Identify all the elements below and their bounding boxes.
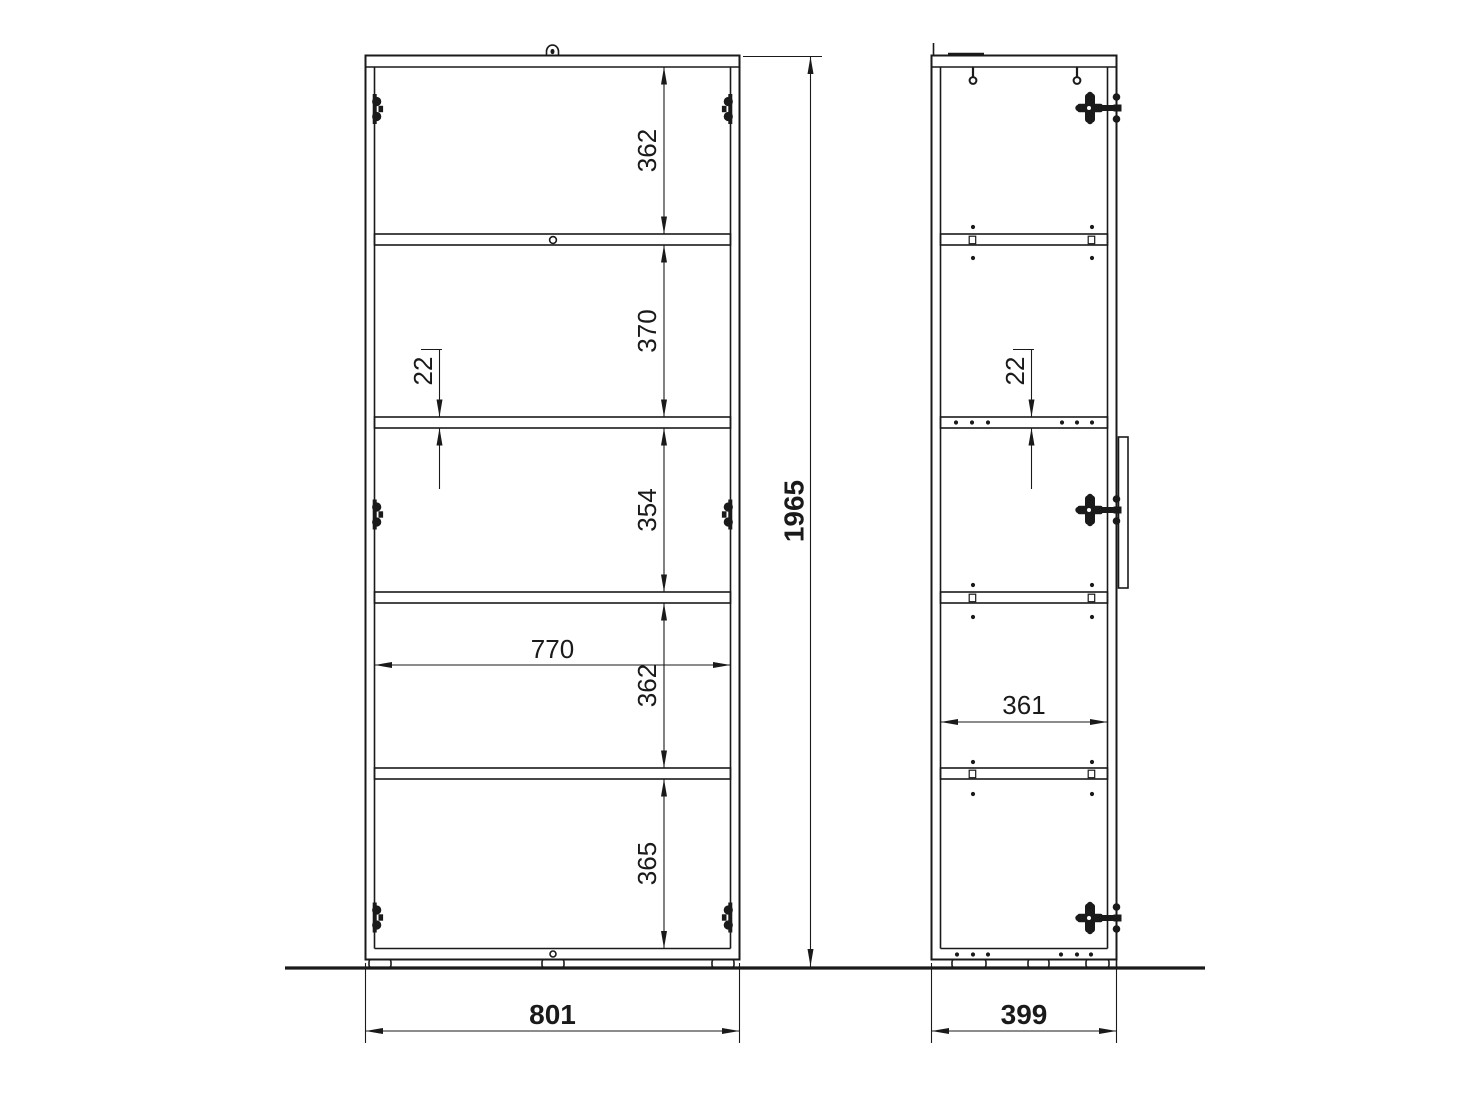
hinge-icon [722,903,733,933]
foot-icon [712,960,734,968]
dimensions: 362 370 354 362 365 770 22 1965 [366,57,1117,1044]
hinge-icon [372,500,383,530]
dim-compartment-1: 362 [632,129,662,172]
hinge-icon [722,94,733,124]
dim-compartment-2: 370 [632,309,662,352]
bottom-hole-icon [550,951,556,957]
dim-inner-width-label: 770 [531,634,574,664]
dim-overall-height-label: 1965 [779,480,810,542]
dim-shelf-thickness-front: 22 [408,350,442,490]
shelf [941,592,1108,603]
hinge-icon [1075,494,1121,526]
front-outer-body [366,56,740,960]
foot-icon [1086,960,1109,968]
hinge-icon [1075,902,1121,934]
dim-overall-depth: 399 [932,963,1117,1043]
front-feet [369,960,734,968]
side-view [932,43,1129,968]
foot-icon [1028,960,1049,968]
shelf [375,592,731,603]
hinge-icon [372,94,383,124]
shelf-pin-holes [954,225,1094,957]
shelf [375,417,731,428]
front-shelves [375,234,731,779]
front-hinges [372,94,733,933]
shelf [941,768,1108,779]
dim-compartment-4: 362 [632,664,662,707]
shelf [375,768,731,779]
technical-drawing-canvas: 362 370 354 362 365 770 22 1965 [0,0,1470,1103]
dim-inner-depth: 361 [941,690,1108,722]
screw-icon [970,77,977,84]
foot-icon [542,960,564,968]
dim-compartment-3: 354 [632,488,662,531]
dim-shelf-thickness-front-label: 22 [408,357,438,386]
dim-shelf-thickness-side: 22 [1000,350,1034,490]
knob-pin-icon [551,49,555,54]
dim-front-compartments: 362 370 354 362 365 [632,67,664,949]
front-view [366,45,740,967]
hanger-screws [970,67,1081,84]
shelf [941,234,1108,245]
screw-icon [1074,77,1081,84]
shelf-hole-icon [550,237,557,244]
dim-compartment-5: 365 [632,842,662,885]
hinge-icon [372,903,383,933]
hinge-icon [1075,92,1121,124]
shelf [941,417,1108,428]
hinge-icon [722,500,733,530]
dim-overall-width-label: 801 [529,999,576,1030]
foot-icon [952,960,986,968]
cabinet-dimension-drawing: 362 370 354 362 365 770 22 1965 [0,0,1470,1103]
side-hinges [1075,92,1121,934]
foot-icon [369,960,391,968]
side-feet [952,960,1109,968]
dim-overall-depth-label: 399 [1001,999,1048,1030]
dim-inner-depth-label: 361 [1002,690,1045,720]
dim-overall-height: 1965 [743,57,822,967]
dim-inner-width: 770 [375,634,731,665]
dim-shelf-thickness-side-label: 22 [1000,357,1030,386]
dim-overall-width: 801 [366,963,740,1043]
